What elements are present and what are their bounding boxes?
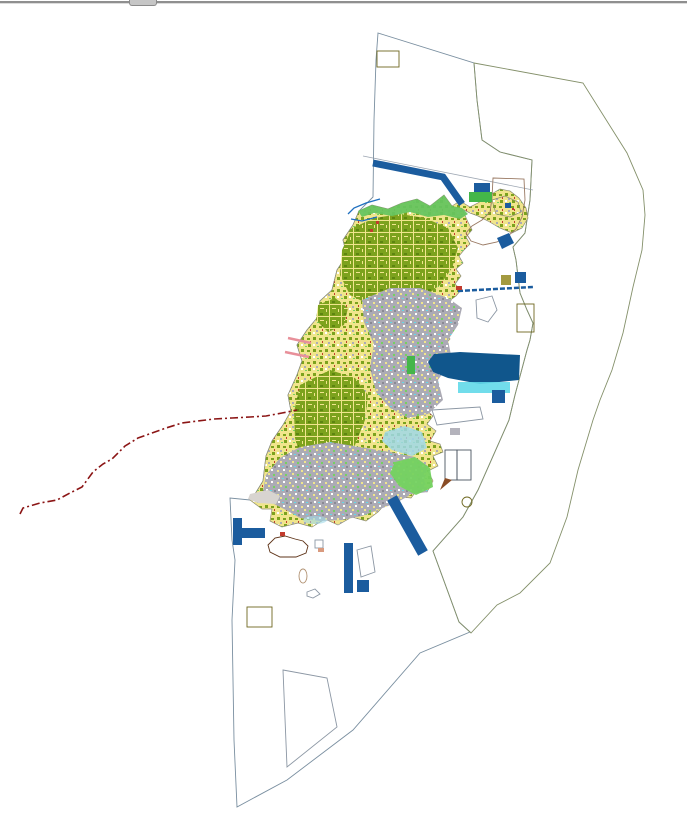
harbor-basin-navy: [428, 352, 520, 384]
salmon-mark-south: [318, 548, 324, 552]
brown-plot-east: [445, 450, 457, 480]
map-canvas: [0, 0, 687, 821]
port-navy-parallelogram: [497, 233, 514, 249]
reclaimed-red-mark: [280, 532, 285, 536]
gray-islet-southeast: [450, 428, 460, 435]
green-block-north: [469, 192, 492, 202]
east-pier-line: [458, 287, 533, 291]
south-navy-block: [357, 580, 369, 592]
salmon-islet: [299, 569, 307, 583]
designated-plot-north: [377, 51, 399, 67]
navy-plot-east: [515, 272, 526, 283]
red-speck-coast: [376, 221, 379, 224]
khaki-buoy: [462, 497, 472, 507]
south-pier: [344, 543, 353, 593]
west-l-pier: [233, 518, 265, 545]
designation-outline-polygon: [432, 407, 483, 425]
white-plot-south: [315, 540, 323, 548]
khaki-plot-east-pair: [457, 450, 471, 480]
navy-block-north: [474, 183, 490, 193]
harbor-green-strip: [407, 356, 415, 374]
port-navy-block: [505, 203, 511, 208]
reclaimed-land-brown: [268, 536, 308, 557]
designation-outline-polygon: [476, 296, 497, 322]
designated-plot-southwest: [247, 607, 272, 627]
designation-outline-polygon: [357, 546, 375, 577]
harbor-navy-block: [492, 390, 505, 403]
landuse-map: [0, 0, 687, 821]
southeast-breakwater: [392, 498, 423, 553]
shallow-water-south: [303, 516, 327, 524]
brown-spit: [440, 478, 452, 490]
port-red-speck: [512, 208, 514, 210]
red-speck-coast: [370, 229, 373, 232]
designation-outline-polygon: [283, 670, 337, 767]
north-breakwater: [373, 163, 462, 204]
khaki-plot-east: [501, 275, 511, 285]
pier-root-red-mark: [456, 286, 462, 290]
blue-islet: [307, 589, 320, 598]
east-zone-region: [433, 63, 645, 633]
khaki-plot-east-large: [517, 304, 534, 332]
